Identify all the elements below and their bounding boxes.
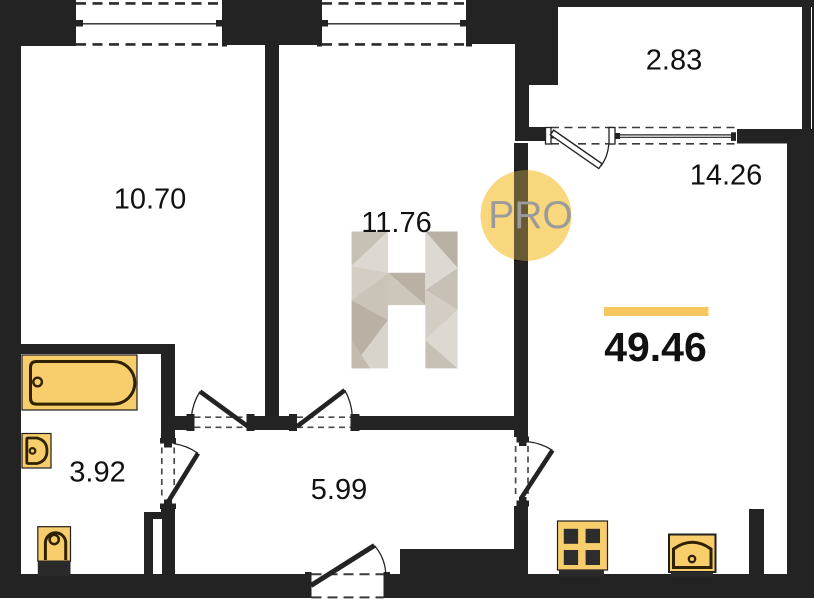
svg-text:10.70: 10.70: [114, 184, 187, 216]
svg-text:2.83: 2.83: [646, 45, 702, 77]
svg-text:3.92: 3.92: [69, 457, 125, 489]
svg-text:14.26: 14.26: [690, 160, 763, 192]
svg-text:11.76: 11.76: [361, 207, 431, 239]
svg-text:49.46: 49.46: [604, 324, 707, 370]
svg-text:5.99: 5.99: [311, 474, 367, 506]
svg-text:PRO: PRO: [488, 194, 573, 237]
